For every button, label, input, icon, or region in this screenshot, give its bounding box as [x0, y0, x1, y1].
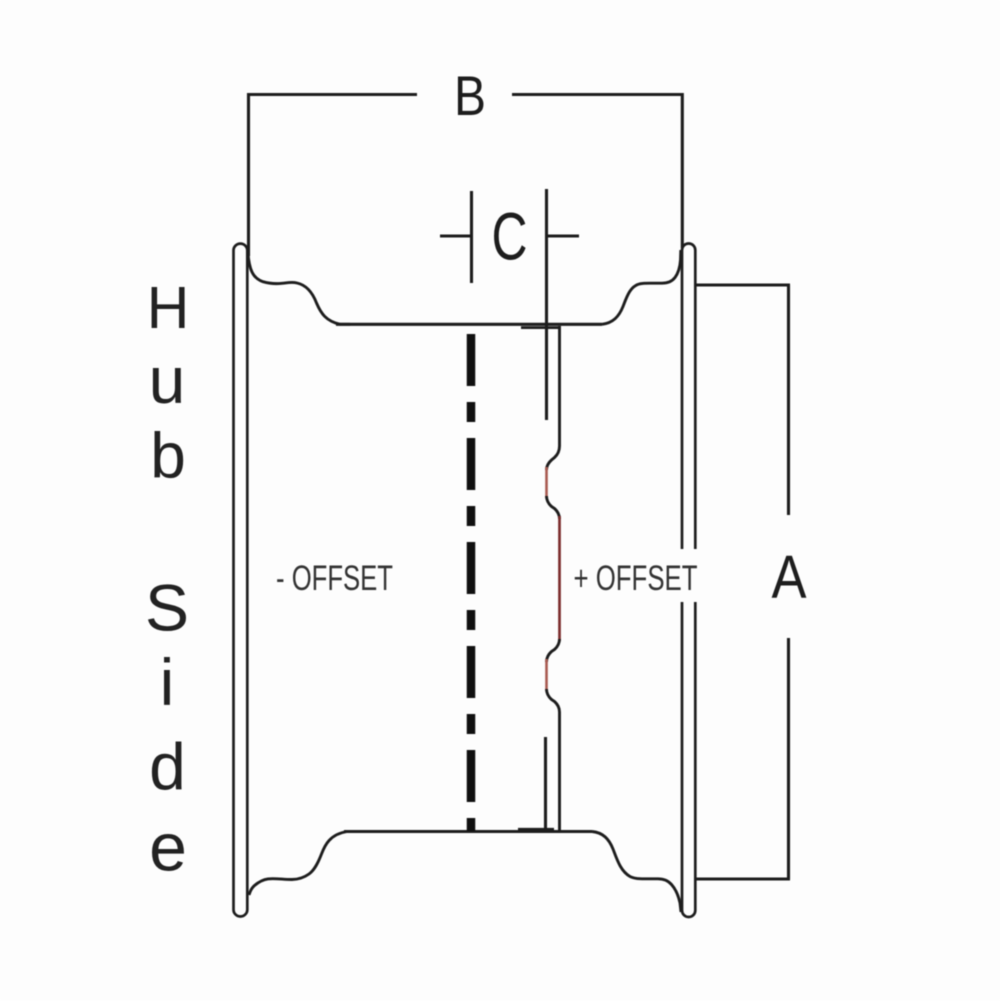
svg-text:H: H: [147, 275, 190, 341]
svg-text:e: e: [149, 810, 187, 886]
svg-text:u: u: [149, 343, 186, 417]
svg-text:A: A: [772, 543, 807, 611]
svg-text:i: i: [160, 645, 175, 719]
svg-text:- OFFSET: - OFFSET: [276, 559, 393, 598]
svg-text:C: C: [492, 200, 528, 275]
svg-text:S: S: [145, 571, 189, 645]
svg-text:b: b: [150, 420, 186, 492]
svg-text:d: d: [149, 730, 186, 804]
svg-text:+ OFFSET: + OFFSET: [574, 559, 698, 598]
svg-text:B: B: [454, 64, 486, 127]
